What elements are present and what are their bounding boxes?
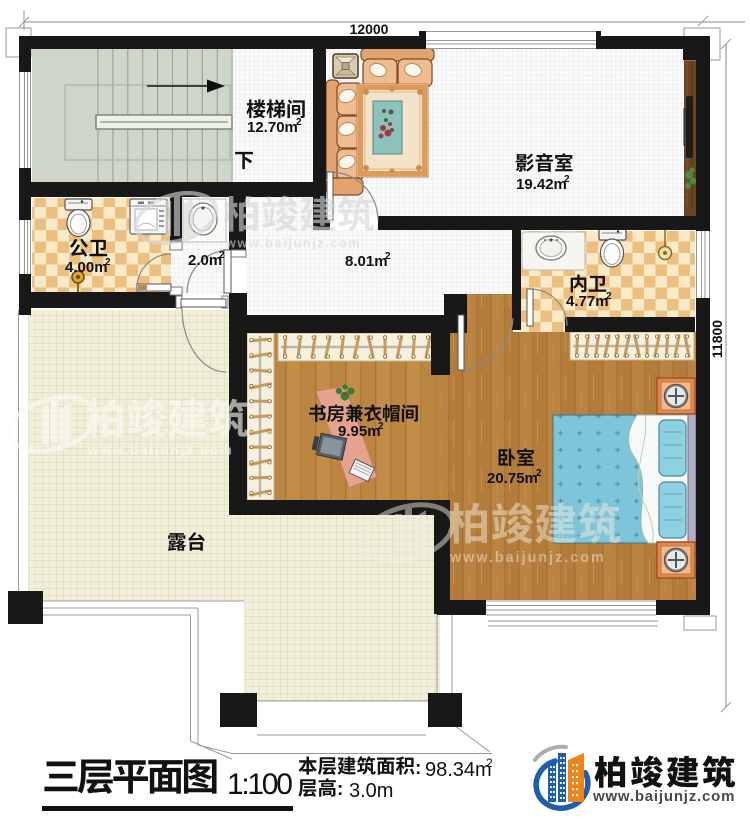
svg-text:11800: 11800 xyxy=(709,320,725,358)
svg-text:12.70m: 12.70m xyxy=(247,119,298,136)
svg-text:www.baijunjz.com: www.baijunjz.com xyxy=(225,237,361,251)
svg-text:2: 2 xyxy=(105,257,111,268)
svg-text:2: 2 xyxy=(296,117,302,128)
svg-text:20.75m: 20.75m xyxy=(487,470,538,487)
svg-text:19.42m: 19.42m xyxy=(516,176,567,193)
svg-text:8.01m: 8.01m xyxy=(345,253,388,270)
svg-text:2: 2 xyxy=(606,291,612,302)
svg-text:4.77m: 4.77m xyxy=(566,293,609,310)
svg-text:1:100: 1:100 xyxy=(227,768,292,801)
svg-text::: : xyxy=(337,779,343,800)
svg-text:2: 2 xyxy=(378,421,384,432)
svg-text:9.95m: 9.95m xyxy=(338,423,381,440)
svg-text:www.baijunjz.com: www.baijunjz.com xyxy=(87,443,233,458)
svg-text:2: 2 xyxy=(564,174,570,185)
svg-text:2: 2 xyxy=(385,251,391,262)
svg-text:2: 2 xyxy=(219,250,225,261)
svg-text:2.0m: 2.0m xyxy=(188,252,222,269)
svg-text:12000: 12000 xyxy=(350,21,389,37)
svg-text:2: 2 xyxy=(486,756,493,770)
svg-text:2: 2 xyxy=(536,468,542,479)
svg-text::: : xyxy=(415,758,421,779)
svg-text:3.0m: 3.0m xyxy=(349,780,393,802)
svg-text:98.34m: 98.34m xyxy=(425,759,492,781)
svg-text:4.00m: 4.00m xyxy=(65,259,108,276)
svg-text:www.baijunjz.com: www.baijunjz.com xyxy=(592,788,735,805)
svg-text:www.baijunjz.com: www.baijunjz.com xyxy=(449,550,606,566)
